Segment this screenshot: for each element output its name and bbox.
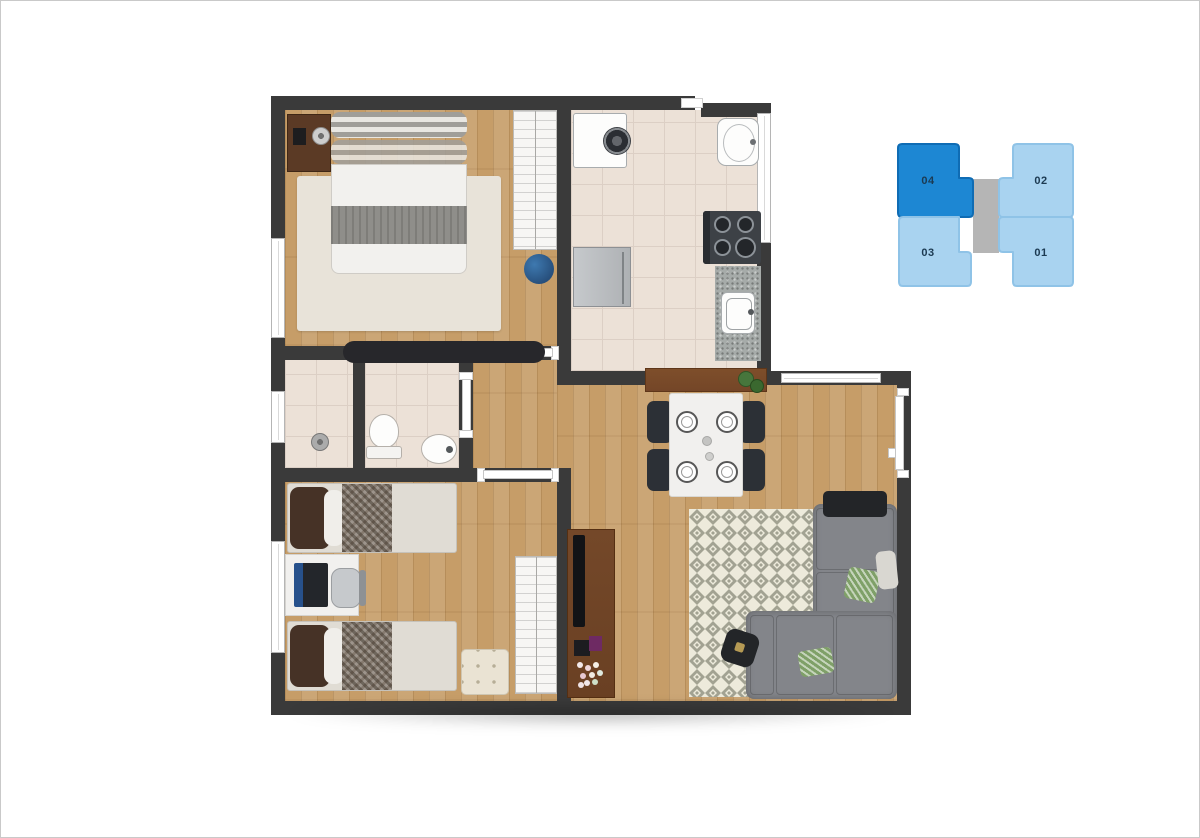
plant-icon	[750, 379, 764, 393]
bathroom-door-jamb	[459, 430, 473, 438]
locator-unit-04[interactable]	[898, 144, 973, 217]
wall-top	[271, 96, 695, 110]
stove	[703, 211, 761, 264]
single-bed-2	[287, 621, 457, 691]
bed-pillow	[331, 112, 467, 138]
bed-blanket	[342, 484, 392, 552]
basin	[421, 434, 457, 464]
bedroom2-door	[483, 470, 553, 479]
laptop-icon	[294, 563, 328, 607]
toilet-tank	[366, 446, 402, 459]
unit-locator: 04 02 03 01	[894, 139, 1084, 293]
stove-knobs	[703, 211, 710, 264]
table-deco	[702, 436, 712, 446]
locator-unit-03[interactable]	[899, 217, 971, 286]
bathroom-door	[462, 379, 471, 431]
wall-shower-divider	[353, 346, 365, 482]
master-dresser	[343, 341, 545, 363]
place-setting	[676, 411, 698, 433]
burner	[714, 216, 731, 233]
page-background: 04 02 03 01	[0, 0, 1200, 838]
book-stack	[574, 640, 590, 656]
burner	[737, 216, 754, 233]
shower-room-floor	[285, 360, 353, 468]
hall-floor	[473, 346, 557, 482]
granite-counter	[715, 266, 761, 361]
window-shower-left	[271, 391, 285, 443]
bed-pillow-white	[324, 490, 344, 546]
lamp-icon	[312, 127, 330, 145]
bed-blanket-band	[331, 206, 467, 244]
sink-faucet	[748, 309, 754, 315]
phone-icon	[293, 128, 306, 145]
window-master-left	[271, 238, 285, 338]
wall-top-notch	[681, 98, 703, 108]
kitchen-sink	[721, 292, 755, 334]
laundry-tub	[717, 118, 759, 166]
place-setting	[716, 461, 738, 483]
bed-blanket	[342, 622, 392, 690]
tub-faucet	[750, 139, 756, 145]
table-deco	[705, 452, 714, 461]
kitchen-sideboard	[645, 368, 767, 392]
place-setting	[676, 461, 698, 483]
entry-door-jamb	[897, 470, 909, 478]
wall-master-kitchen	[557, 96, 571, 385]
white-pillow	[875, 550, 899, 590]
bed-pillow	[331, 140, 467, 164]
locator-label-02: 02	[1034, 175, 1047, 187]
floor-plan	[271, 96, 911, 715]
window-living-top	[781, 373, 881, 383]
single-bed-1	[287, 483, 457, 553]
nightstand	[287, 114, 331, 172]
bedroom2-wardrobe	[515, 556, 557, 694]
desk-chair-back	[359, 570, 366, 606]
entry-door	[895, 396, 904, 470]
floor-plan-shadow	[279, 707, 903, 727]
wall-kitchen-bottom	[557, 371, 655, 385]
window-bedroom2-left	[271, 541, 285, 653]
basin-faucet	[446, 446, 453, 453]
toilet	[369, 414, 399, 448]
shower-head-icon	[311, 433, 329, 451]
book-stack	[589, 636, 602, 651]
tv	[573, 535, 585, 627]
tv-rack	[567, 529, 615, 698]
burner	[714, 239, 731, 256]
flower-vase	[577, 662, 583, 668]
washing-machine	[573, 113, 627, 168]
place-setting	[716, 411, 738, 433]
tufted-ottoman	[461, 649, 509, 695]
locator-label-04: 04	[921, 175, 935, 187]
entry-door-handle	[888, 448, 896, 458]
blue-pouf	[524, 254, 554, 284]
desk-chair	[331, 568, 361, 608]
bed-pillow-white	[324, 628, 344, 684]
double-bed	[329, 110, 469, 274]
dining-table	[669, 393, 743, 497]
entry-door-jamb	[897, 388, 909, 396]
green-pillow	[843, 566, 881, 604]
sofa-dark-throw	[823, 491, 887, 517]
locator-label-03: 03	[921, 247, 934, 259]
master-wardrobe	[513, 110, 557, 250]
washer-drum	[603, 127, 631, 155]
table-tray	[734, 642, 745, 653]
locator-corridor	[973, 179, 999, 253]
sofa-cushion	[836, 615, 893, 695]
locator-label-01: 01	[1034, 247, 1047, 259]
fridge-handle	[622, 252, 624, 304]
fridge	[573, 247, 631, 307]
burner	[735, 237, 756, 258]
